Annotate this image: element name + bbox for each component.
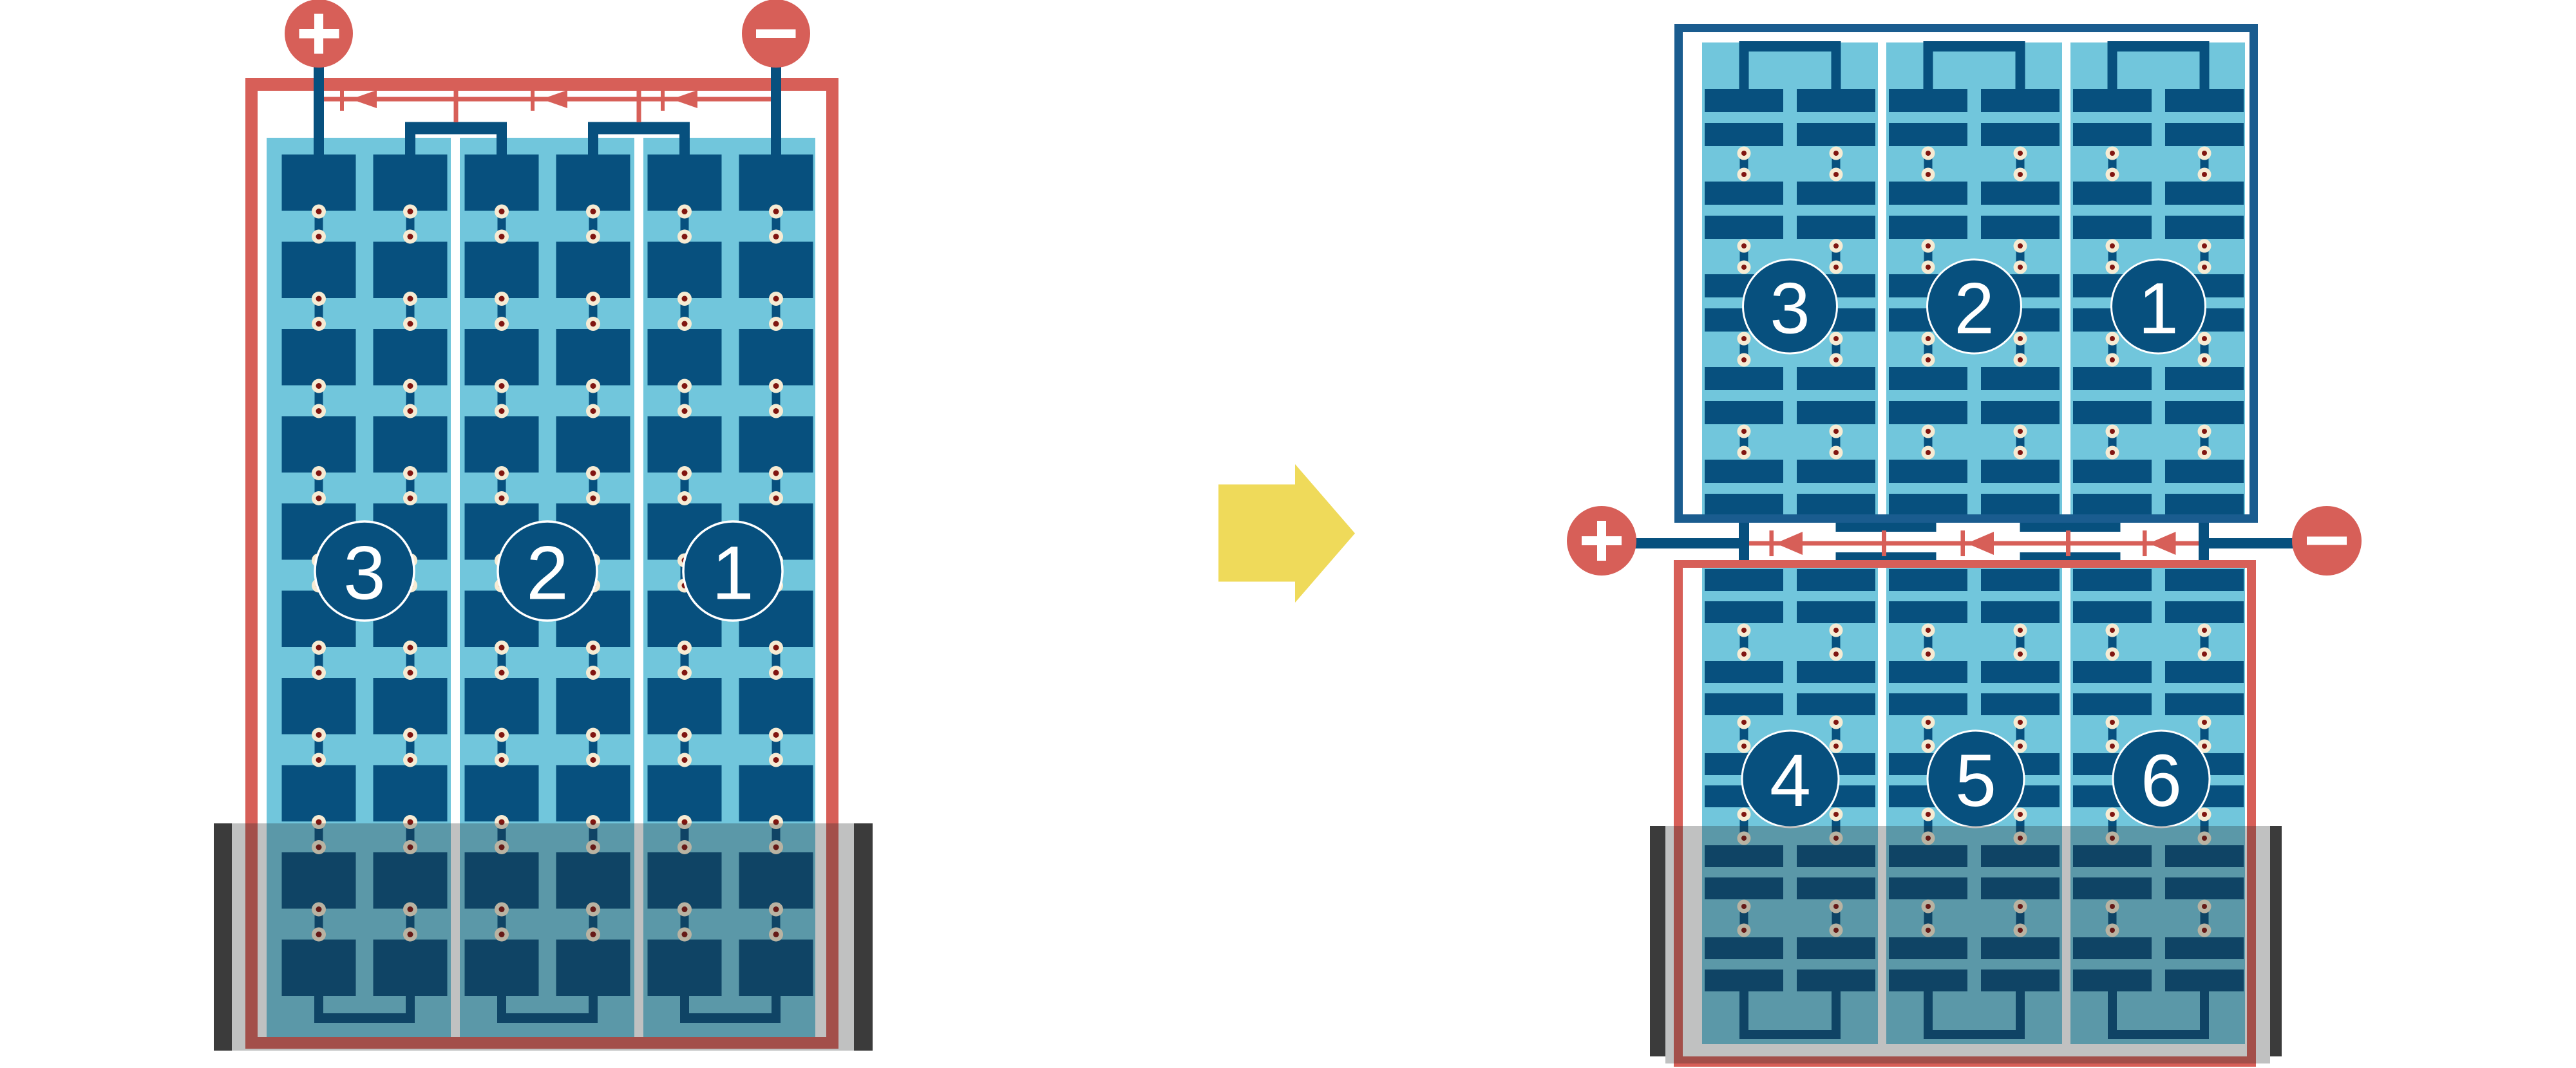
svg-text:3: 3 — [1770, 268, 1810, 349]
svg-text:4: 4 — [1770, 740, 1811, 822]
svg-text:6: 6 — [2141, 740, 2182, 822]
svg-text:2: 2 — [526, 531, 569, 616]
svg-text:5: 5 — [1955, 740, 1996, 822]
svg-text:1: 1 — [2138, 268, 2178, 349]
svg-text:3: 3 — [343, 531, 386, 616]
svg-text:2: 2 — [1954, 268, 1994, 349]
svg-text:1: 1 — [712, 531, 754, 616]
